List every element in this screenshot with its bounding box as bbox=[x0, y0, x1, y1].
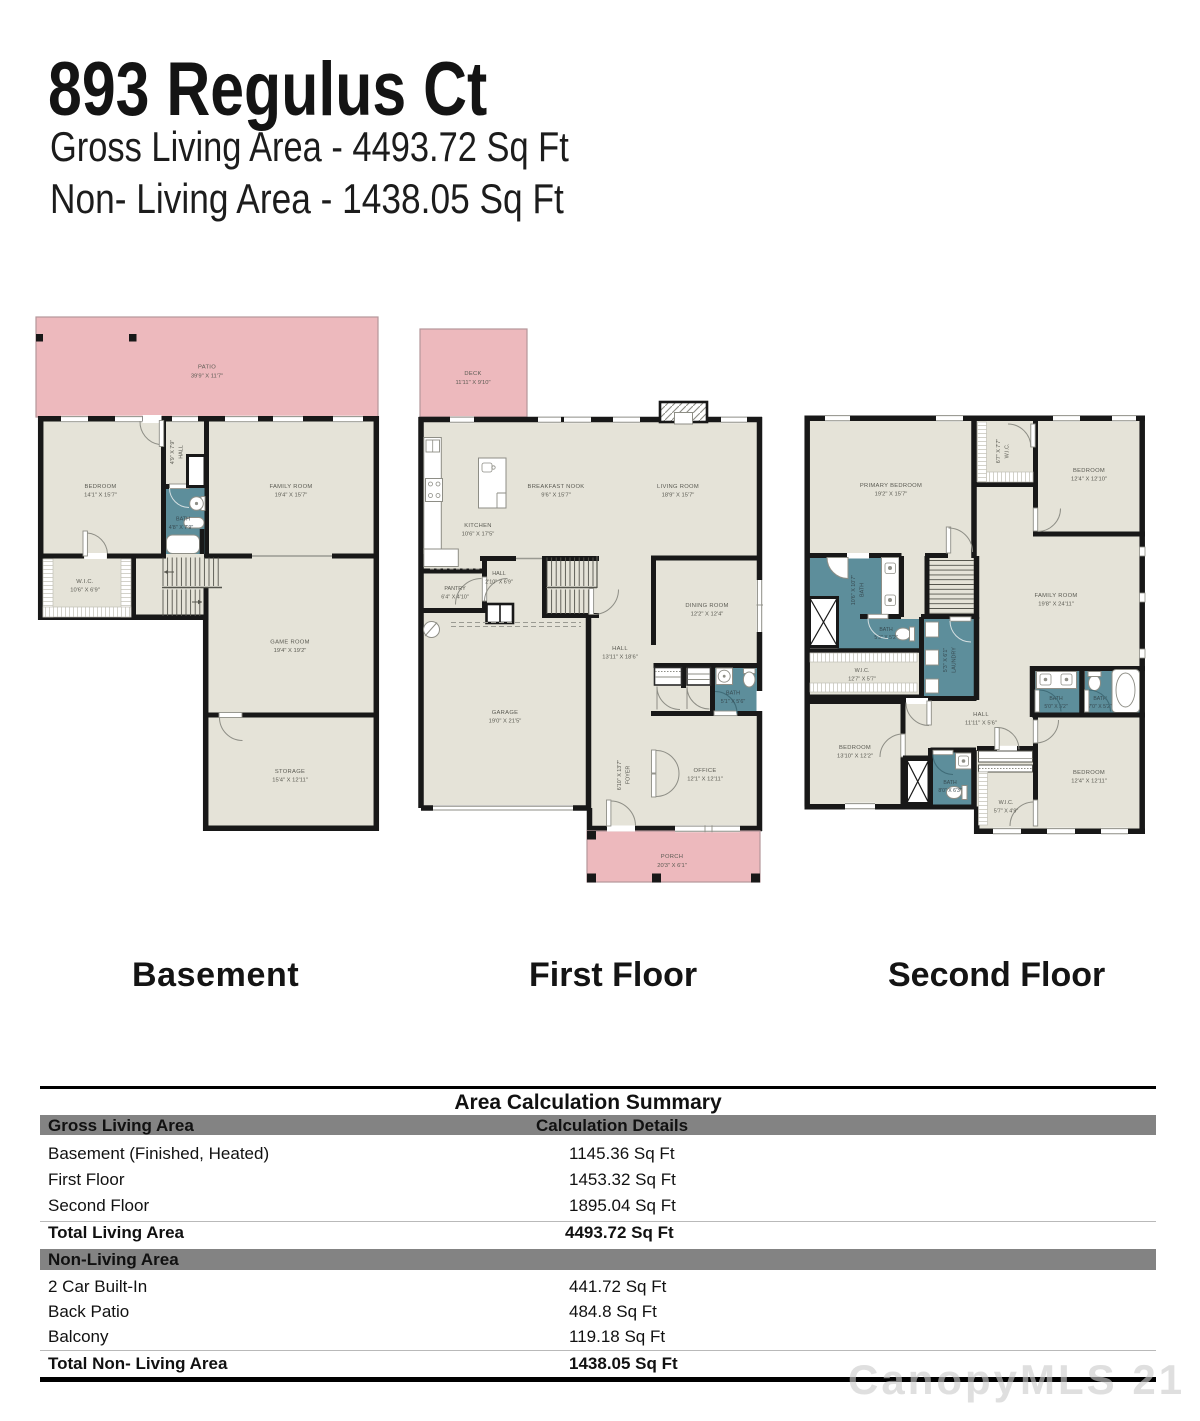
svg-text:9'6" X 15'7": 9'6" X 15'7" bbox=[541, 493, 571, 499]
svg-text:12'4" X 12'11": 12'4" X 12'11" bbox=[1071, 779, 1107, 785]
svg-text:W.I.C.: W.I.C. bbox=[855, 668, 870, 674]
svg-text:PORCH: PORCH bbox=[661, 854, 683, 860]
svg-text:19'4" X 15'7": 19'4" X 15'7" bbox=[275, 493, 308, 499]
svg-text:4'8" X 7'9": 4'8" X 7'9" bbox=[169, 525, 194, 531]
svg-text:KITCHEN: KITCHEN bbox=[464, 523, 492, 529]
svg-text:BREAKFAST NOOK: BREAKFAST NOOK bbox=[528, 484, 585, 490]
svg-text:HALL: HALL bbox=[612, 646, 628, 652]
svg-text:5'3" X 6'1": 5'3" X 6'1" bbox=[943, 648, 949, 673]
svg-text:13'11" X 18'6": 13'11" X 18'6" bbox=[602, 655, 638, 661]
svg-text:BEDROOM: BEDROOM bbox=[1073, 468, 1105, 474]
svg-text:FAMILY ROOM: FAMILY ROOM bbox=[269, 484, 312, 490]
svg-text:6'10" X 13'7": 6'10" X 13'7" bbox=[617, 760, 623, 791]
svg-text:10'6" X 10'7": 10'6" X 10'7" bbox=[851, 575, 857, 606]
svg-text:2'10" X 6'9": 2'10" X 6'9" bbox=[485, 580, 513, 586]
svg-text:OFFICE: OFFICE bbox=[693, 768, 716, 774]
svg-text:FAMILY ROOM: FAMILY ROOM bbox=[1034, 593, 1077, 599]
svg-text:12'2" X 12'4": 12'2" X 12'4" bbox=[691, 612, 724, 618]
svg-text:DINING ROOM: DINING ROOM bbox=[685, 603, 728, 609]
svg-text:15'4" X 12'11": 15'4" X 12'11" bbox=[272, 778, 308, 784]
svg-text:19'8" X 24'11": 19'8" X 24'11" bbox=[1038, 602, 1074, 608]
svg-text:PANTRY: PANTRY bbox=[444, 586, 466, 592]
svg-text:19'4" X 19'2": 19'4" X 19'2" bbox=[274, 648, 307, 654]
svg-text:6'4" X 4'10": 6'4" X 4'10" bbox=[441, 595, 469, 601]
svg-text:5'1" X 5'6": 5'1" X 5'6" bbox=[721, 699, 746, 705]
svg-text:W.I.C.: W.I.C. bbox=[999, 800, 1014, 806]
svg-text:19'2" X 15'7": 19'2" X 15'7" bbox=[875, 492, 908, 498]
svg-text:19'0" X 21'5": 19'0" X 21'5" bbox=[489, 719, 522, 725]
svg-text:12'4" X 12'10": 12'4" X 12'10" bbox=[1071, 477, 1107, 483]
svg-text:5'0" X 5'2": 5'0" X 5'2" bbox=[1044, 704, 1068, 710]
svg-text:10'6" X 17'5": 10'6" X 17'5" bbox=[462, 532, 495, 538]
svg-text:5'7" X 4'9": 5'7" X 4'9" bbox=[994, 809, 1019, 815]
svg-text:HALL: HALL bbox=[973, 712, 989, 718]
svg-text:W.I.C.: W.I.C. bbox=[76, 579, 94, 585]
svg-text:BEDROOM: BEDROOM bbox=[1073, 770, 1105, 776]
svg-text:DECK: DECK bbox=[464, 371, 481, 377]
svg-text:LAUNDRY: LAUNDRY bbox=[952, 647, 958, 673]
svg-text:6'7" X 7'7": 6'7" X 7'7" bbox=[996, 439, 1002, 464]
svg-text:GAME ROOM: GAME ROOM bbox=[270, 640, 309, 646]
svg-text:BEDROOM: BEDROOM bbox=[839, 745, 871, 751]
svg-text:14'1" X 15'7": 14'1" X 15'7" bbox=[84, 493, 117, 499]
svg-text:39'9" X 11'7": 39'9" X 11'7" bbox=[191, 374, 223, 380]
svg-text:BATH: BATH bbox=[879, 627, 893, 633]
svg-text:12'1" X 12'11": 12'1" X 12'11" bbox=[687, 777, 723, 783]
svg-text:HALL: HALL bbox=[179, 445, 185, 459]
svg-text:PATIO: PATIO bbox=[198, 365, 216, 371]
svg-text:4'9" X 7'9": 4'9" X 7'9" bbox=[170, 440, 176, 465]
svg-text:BEDROOM: BEDROOM bbox=[84, 484, 116, 490]
svg-text:7'0" X 5'2": 7'0" X 5'2" bbox=[1088, 704, 1112, 710]
svg-text:BATH: BATH bbox=[176, 517, 190, 523]
svg-text:GARAGE: GARAGE bbox=[492, 710, 519, 716]
svg-text:PRIMARY BEDROOM: PRIMARY BEDROOM bbox=[860, 483, 922, 489]
svg-text:LIVING ROOM: LIVING ROOM bbox=[657, 484, 699, 490]
svg-text:HALL: HALL bbox=[492, 571, 506, 577]
svg-text:W.I.C.: W.I.C. bbox=[1005, 444, 1011, 459]
svg-text:8'0" X 6'3": 8'0" X 6'3" bbox=[938, 788, 962, 794]
svg-text:20'3" X 6'1": 20'3" X 6'1" bbox=[657, 863, 687, 869]
svg-text:11'11" X 9'10": 11'11" X 9'10" bbox=[455, 380, 490, 386]
svg-text:11'11" X 5'6": 11'11" X 5'6" bbox=[965, 721, 997, 727]
svg-text:BATH: BATH bbox=[943, 780, 957, 786]
svg-text:STORAGE: STORAGE bbox=[275, 769, 305, 775]
svg-text:10'6" X 6'9": 10'6" X 6'9" bbox=[70, 588, 100, 594]
svg-text:18'9" X 15'7": 18'9" X 15'7" bbox=[662, 493, 695, 499]
svg-text:BATH: BATH bbox=[860, 583, 866, 597]
svg-text:FOYER: FOYER bbox=[626, 766, 632, 785]
svg-text:12'7" X 5'7": 12'7" X 5'7" bbox=[848, 677, 876, 683]
svg-text:BATH: BATH bbox=[726, 691, 740, 697]
svg-text:13'10" X 12'2": 13'10" X 12'2" bbox=[837, 754, 873, 760]
